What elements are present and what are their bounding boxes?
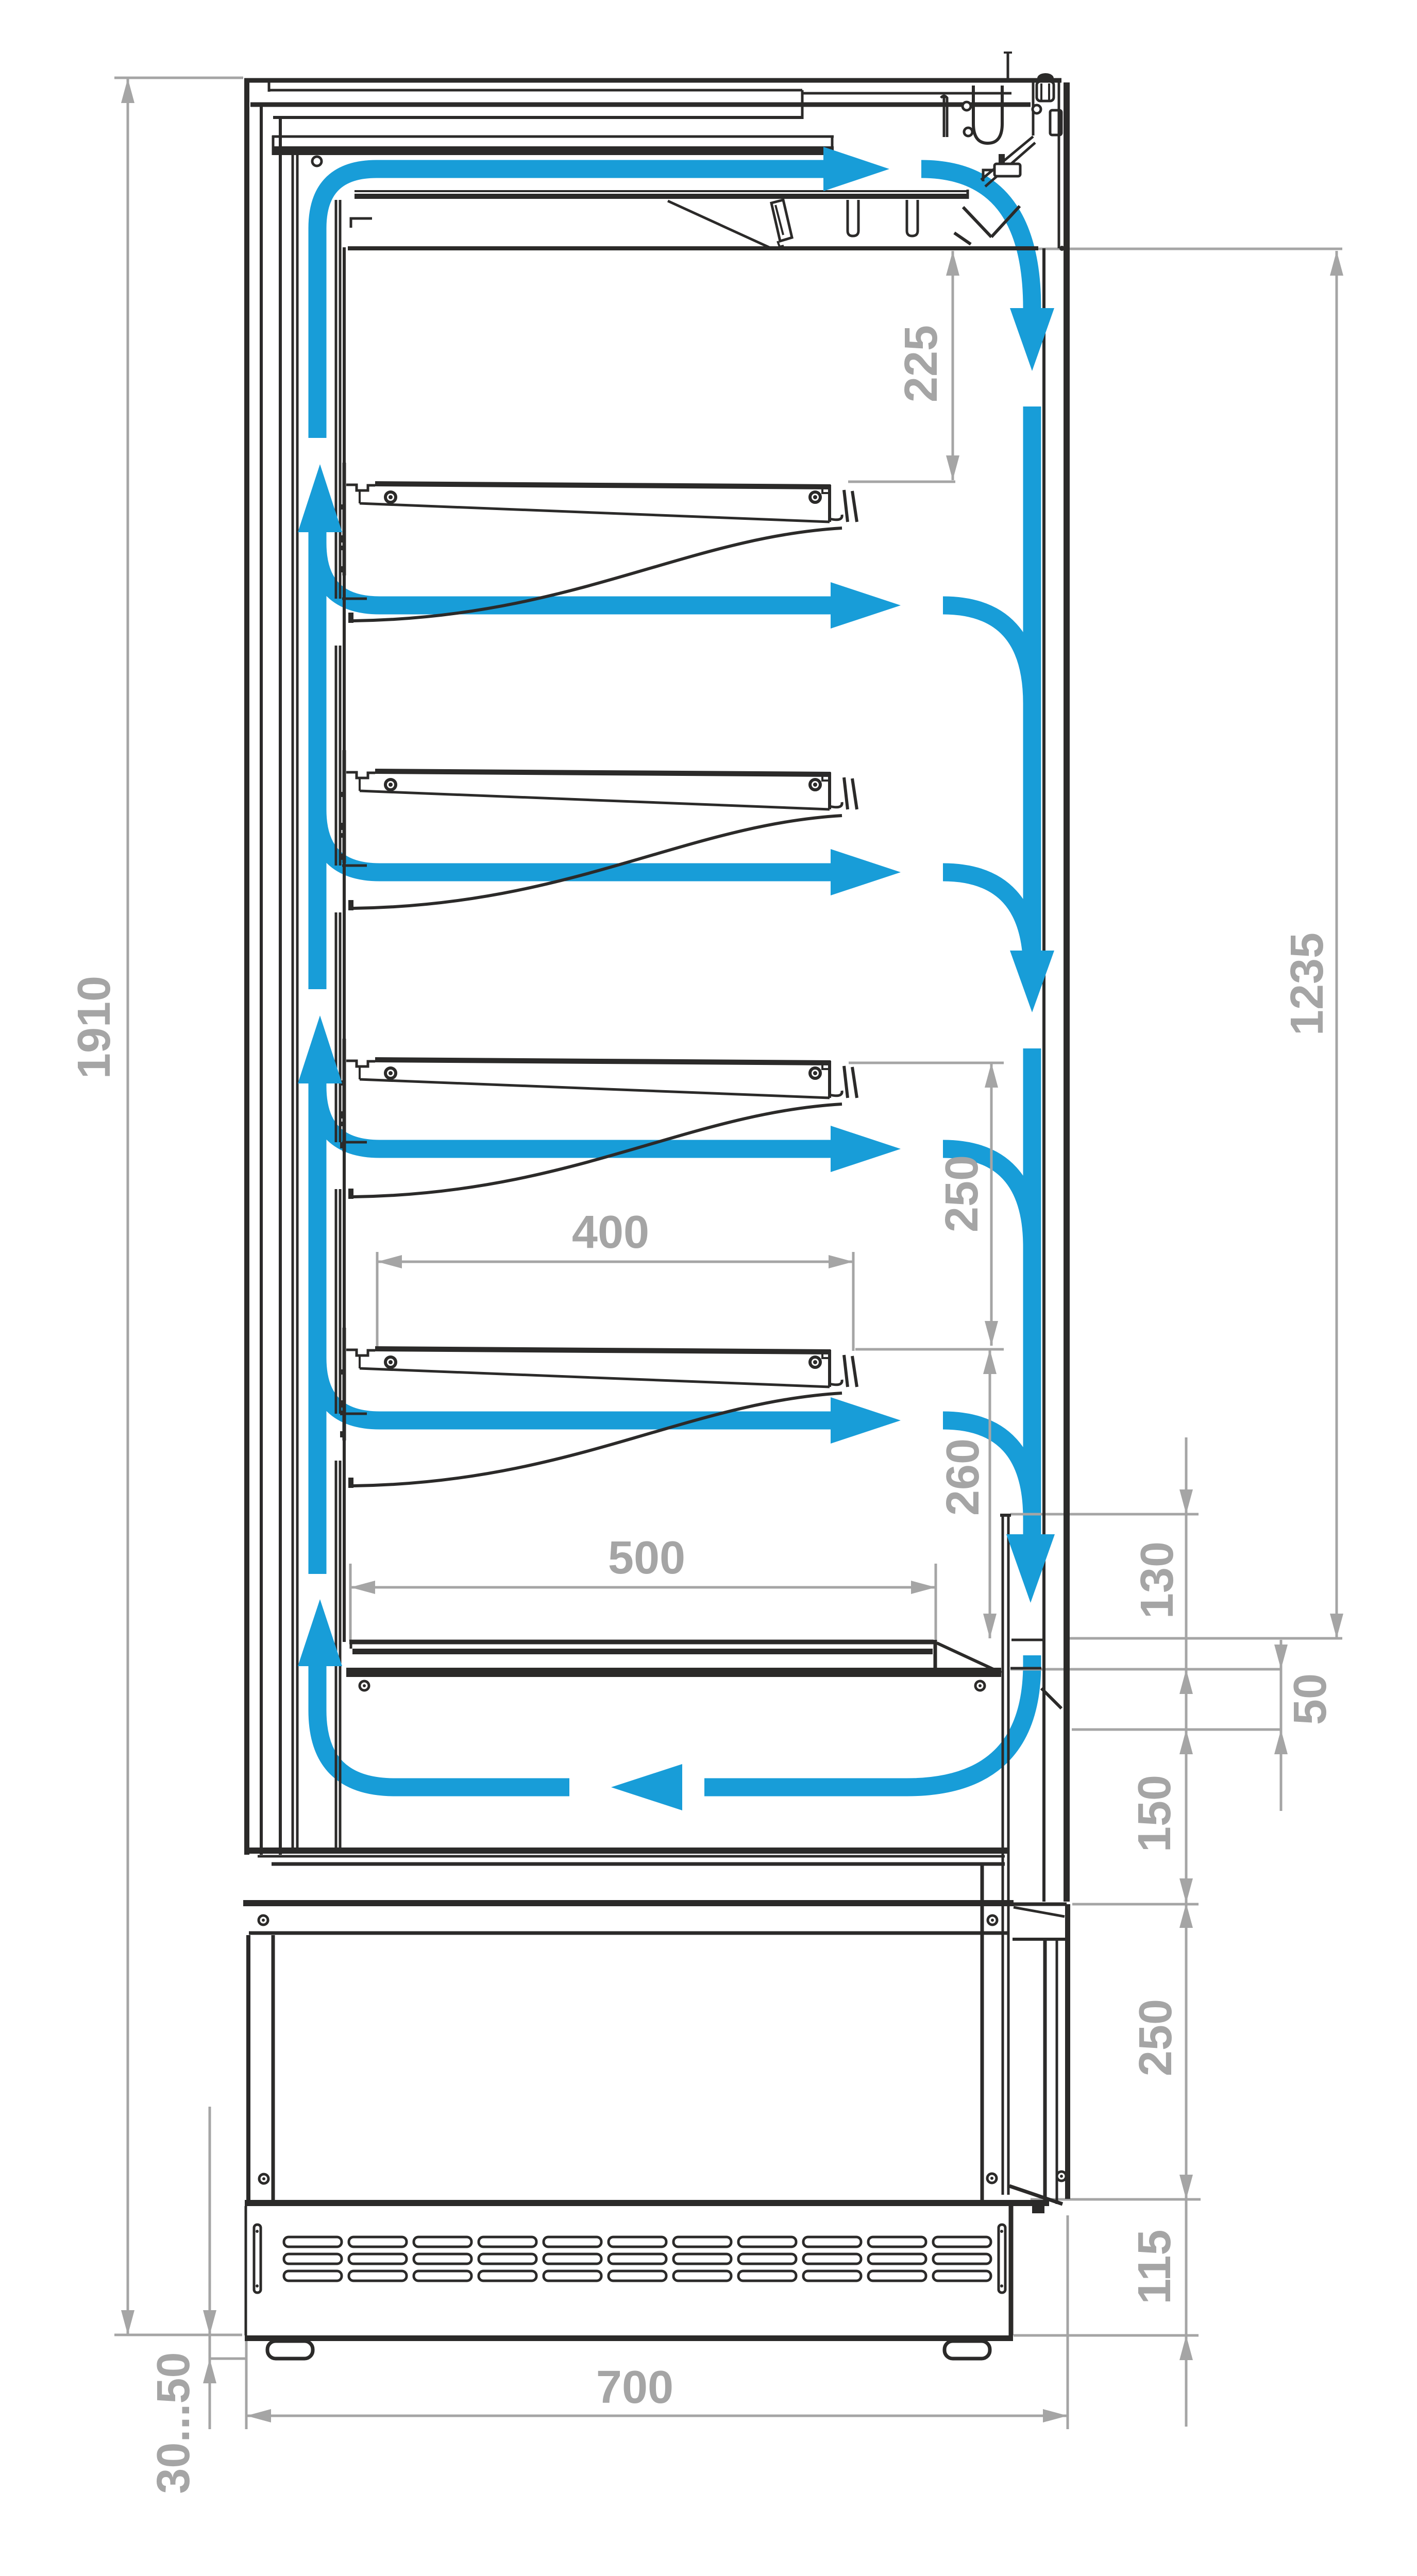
- svg-text:150: 150: [1129, 1775, 1180, 1852]
- svg-text:30...50: 30...50: [148, 2352, 199, 2494]
- svg-text:250: 250: [1130, 1999, 1182, 2076]
- svg-text:500: 500: [608, 1532, 685, 1584]
- svg-text:225: 225: [896, 325, 947, 402]
- svg-text:700: 700: [596, 2362, 673, 2413]
- svg-text:400: 400: [572, 1207, 649, 1258]
- svg-text:130: 130: [1132, 1541, 1183, 1619]
- svg-text:115: 115: [1129, 2229, 1180, 2304]
- svg-text:1910: 1910: [69, 976, 120, 1079]
- svg-text:50: 50: [1285, 1673, 1336, 1725]
- svg-text:250: 250: [936, 1155, 988, 1232]
- svg-text:260: 260: [937, 1438, 989, 1516]
- svg-text:1235: 1235: [1281, 933, 1333, 1036]
